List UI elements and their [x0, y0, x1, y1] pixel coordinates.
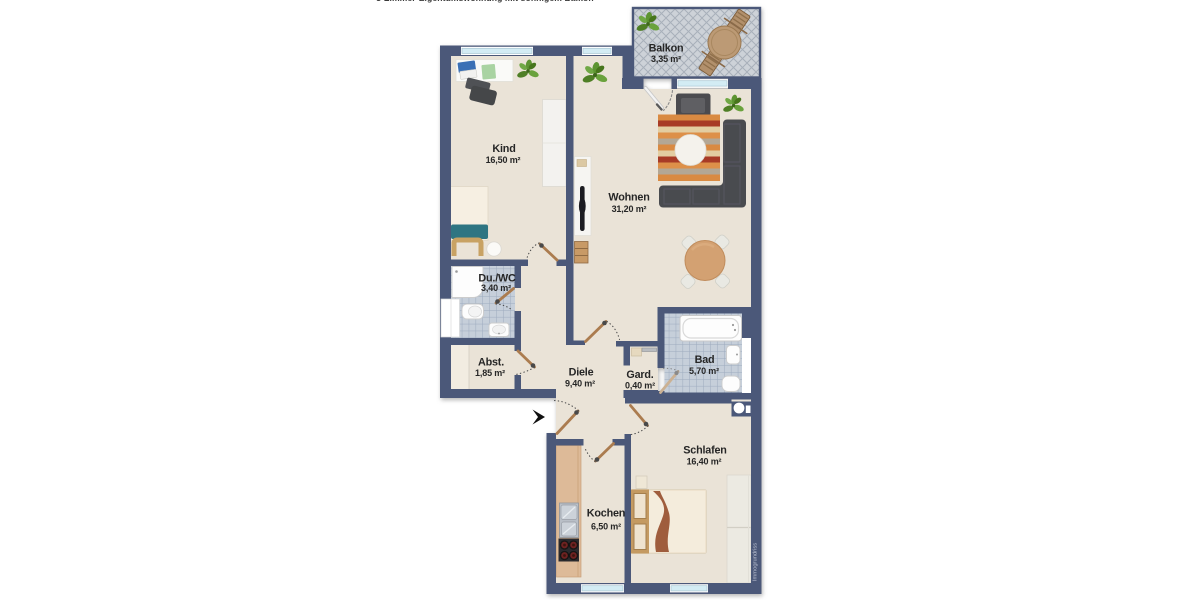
svg-text:Bad: Bad: [695, 354, 715, 366]
svg-text:31,20 m²: 31,20 m²: [612, 204, 647, 214]
svg-text:16,40 m²: 16,40 m²: [687, 457, 722, 467]
svg-text:3,40 m²: 3,40 m²: [481, 283, 511, 293]
svg-text:Wohnen: Wohnen: [608, 191, 649, 203]
svg-text:3,35 m²: 3,35 m²: [651, 54, 681, 64]
svg-text:Kochen: Kochen: [587, 507, 625, 519]
svg-text:9,40 m²: 9,40 m²: [565, 379, 595, 389]
svg-text:Kind: Kind: [492, 143, 515, 155]
svg-text:6,50 m²: 6,50 m²: [591, 522, 621, 532]
svg-text:Balkon: Balkon: [649, 42, 684, 54]
svg-text:16,50 m²: 16,50 m²: [486, 155, 521, 165]
svg-text:Immogrundriss: Immogrundriss: [753, 543, 759, 581]
svg-text:Abst.: Abst.: [478, 356, 504, 368]
svg-text:0,40 m²: 0,40 m²: [625, 381, 655, 391]
svg-text:5,70 m²: 5,70 m²: [689, 366, 719, 376]
svg-text:Gard.: Gard.: [626, 369, 653, 381]
svg-text:Diele: Diele: [569, 366, 594, 378]
svg-text:1,85 m²: 1,85 m²: [475, 368, 505, 378]
svg-text:Schlafen: Schlafen: [683, 444, 726, 456]
svg-text:3-Zimmer-Eigentumswohnung mit: 3-Zimmer-Eigentumswohnung mit sonnigem B…: [376, 0, 593, 3]
